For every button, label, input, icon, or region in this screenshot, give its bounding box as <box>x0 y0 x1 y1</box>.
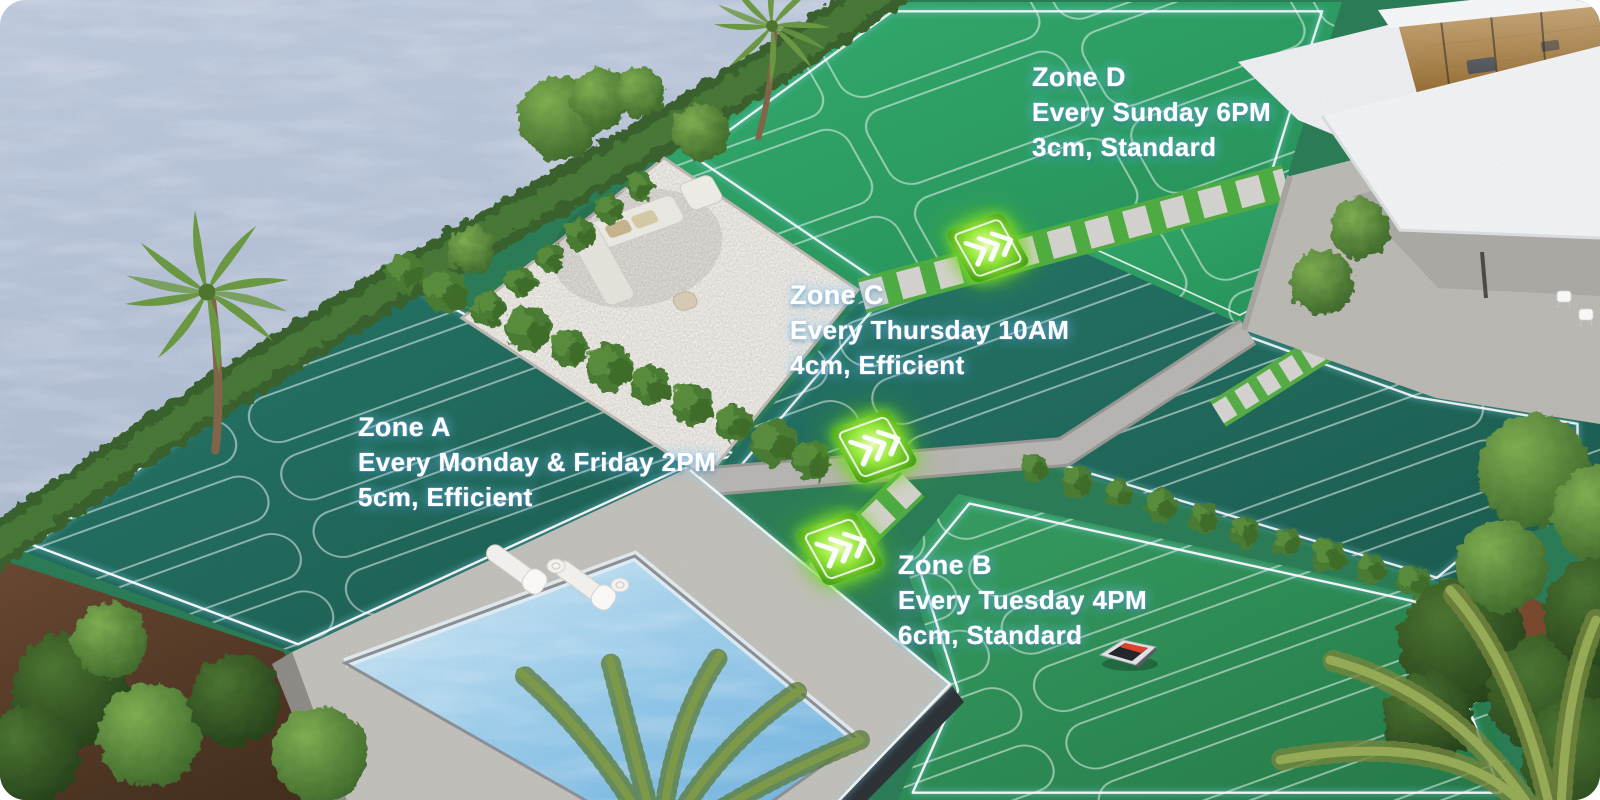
film-grain-overlay <box>0 0 1600 800</box>
zone-c-schedule: Every Thursday 10AM <box>790 313 1069 348</box>
zone-a-schedule: Every Monday & Friday 2PM <box>358 445 716 480</box>
zone-b-name: Zone B <box>898 548 1147 583</box>
zone-d-name: Zone D <box>1032 60 1271 95</box>
zone-d-label: Zone D Every Sunday 6PM 3cm, Standard <box>1032 60 1271 165</box>
zone-b-settings: 6cm, Standard <box>898 618 1147 653</box>
zone-b-schedule: Every Tuesday 4PM <box>898 583 1147 618</box>
zone-a-name: Zone A <box>358 410 716 445</box>
zone-a-settings: 5cm, Efficient <box>358 480 716 515</box>
zone-c-name: Zone C <box>790 278 1069 313</box>
zone-a-label: Zone A Every Monday & Friday 2PM 5cm, Ef… <box>358 410 716 515</box>
zone-c-settings: 4cm, Efficient <box>790 348 1069 383</box>
smart-mower-yard-render: Zone A Every Monday & Friday 2PM 5cm, Ef… <box>0 0 1600 800</box>
zone-d-schedule: Every Sunday 6PM <box>1032 95 1271 130</box>
zone-d-settings: 3cm, Standard <box>1032 130 1271 165</box>
zone-b-label: Zone B Every Tuesday 4PM 6cm, Standard <box>898 548 1147 653</box>
zone-c-label: Zone C Every Thursday 10AM 4cm, Efficien… <box>790 278 1069 383</box>
